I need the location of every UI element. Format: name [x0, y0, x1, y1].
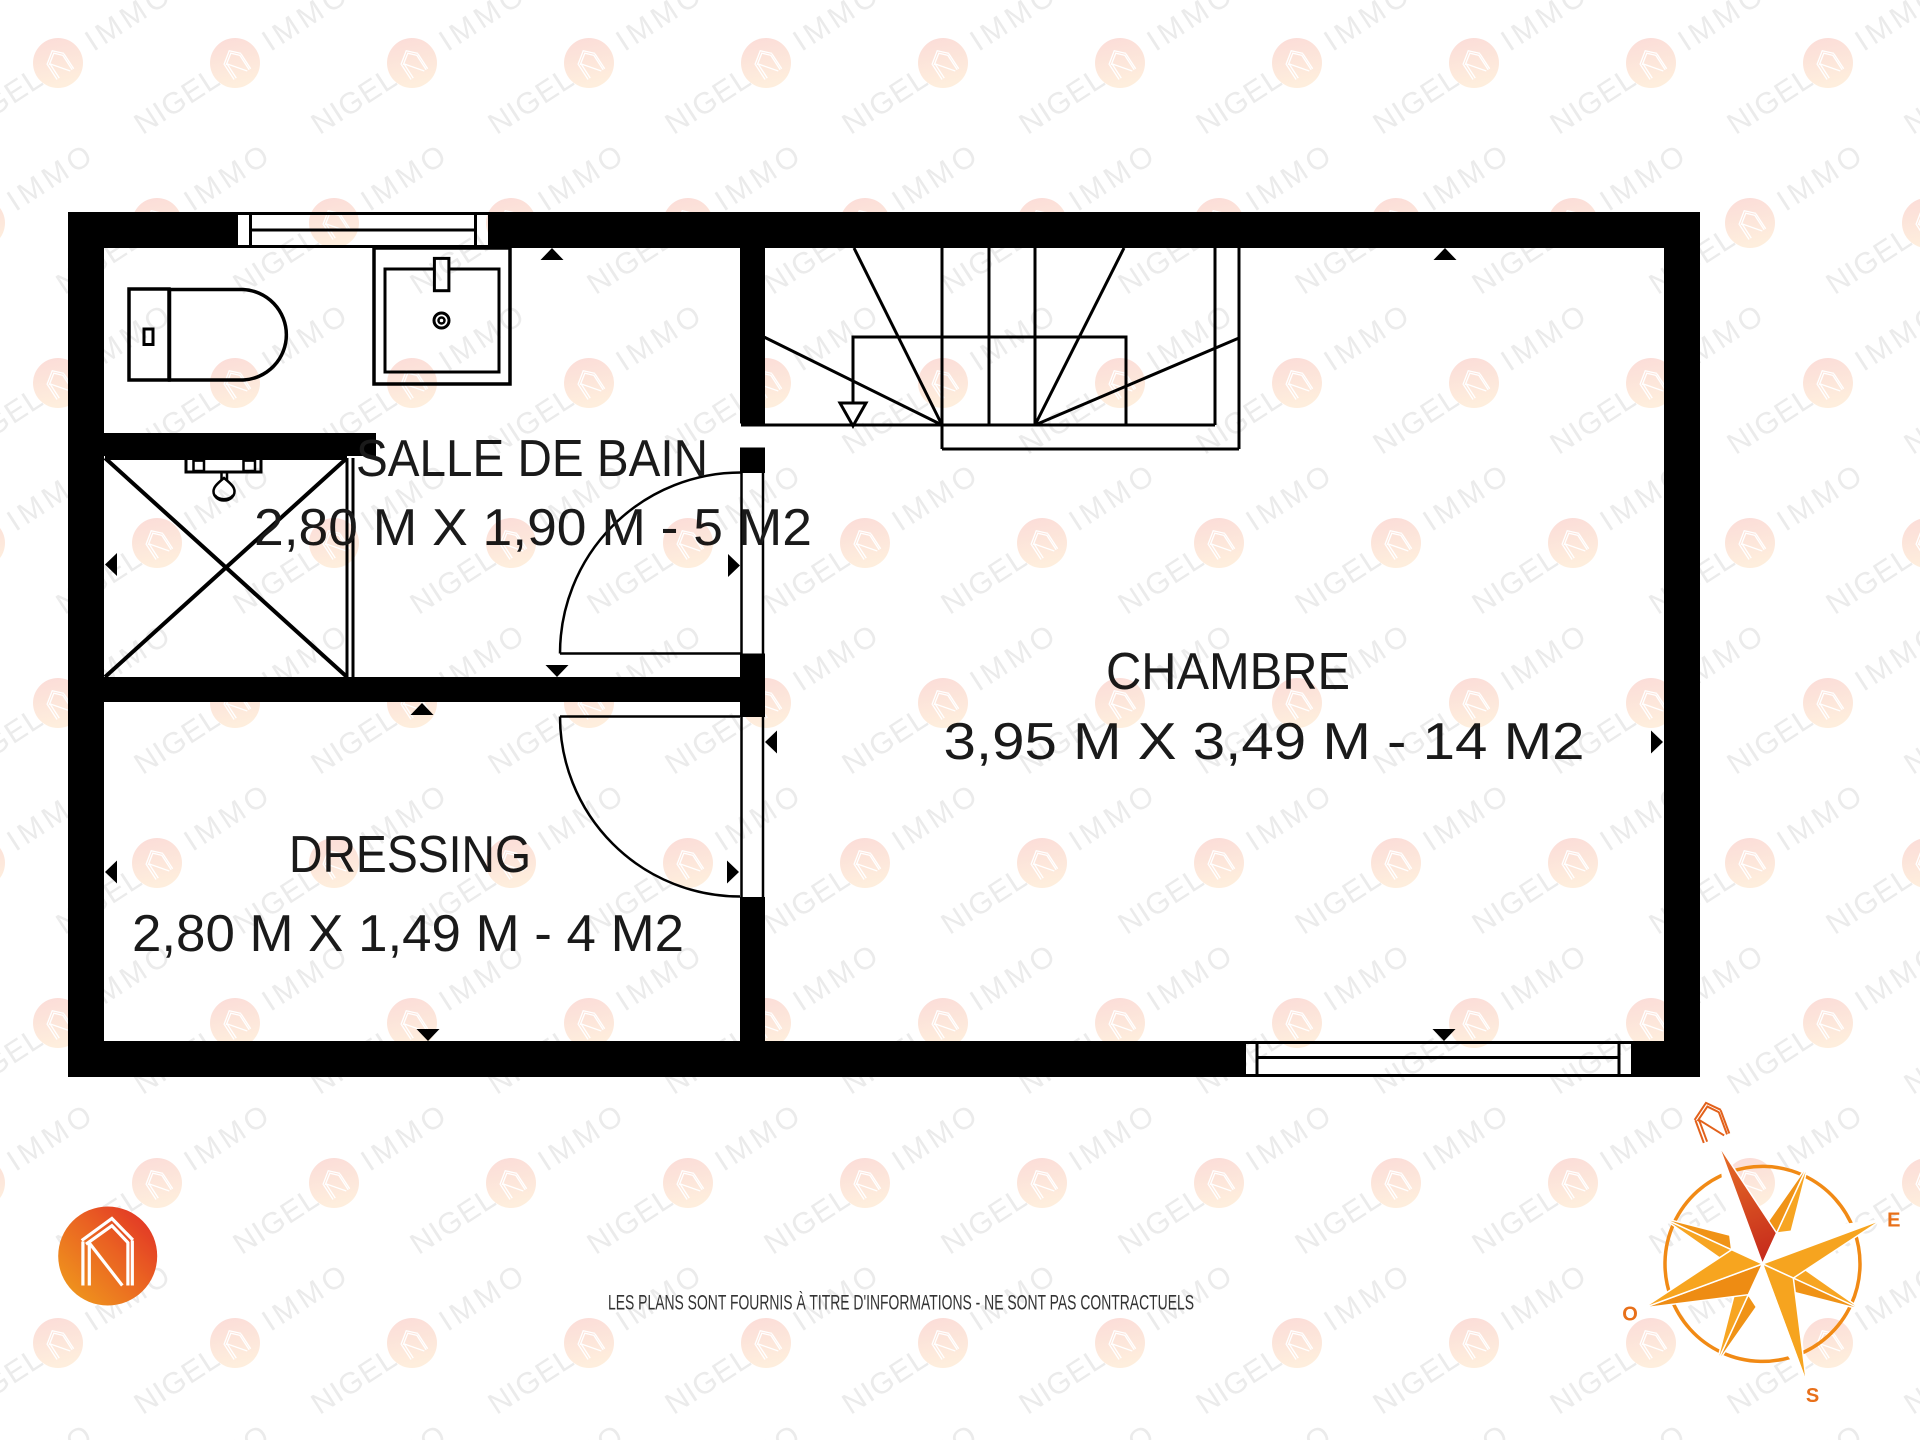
svg-text:O: O [1622, 1304, 1638, 1326]
svg-text:LES PLANS SONT FOURNIS À TITRE: LES PLANS SONT FOURNIS À TITRE D'INFORMA… [608, 1292, 1194, 1315]
svg-text:S: S [1806, 1385, 1819, 1407]
svg-text:E: E [1887, 1210, 1900, 1232]
